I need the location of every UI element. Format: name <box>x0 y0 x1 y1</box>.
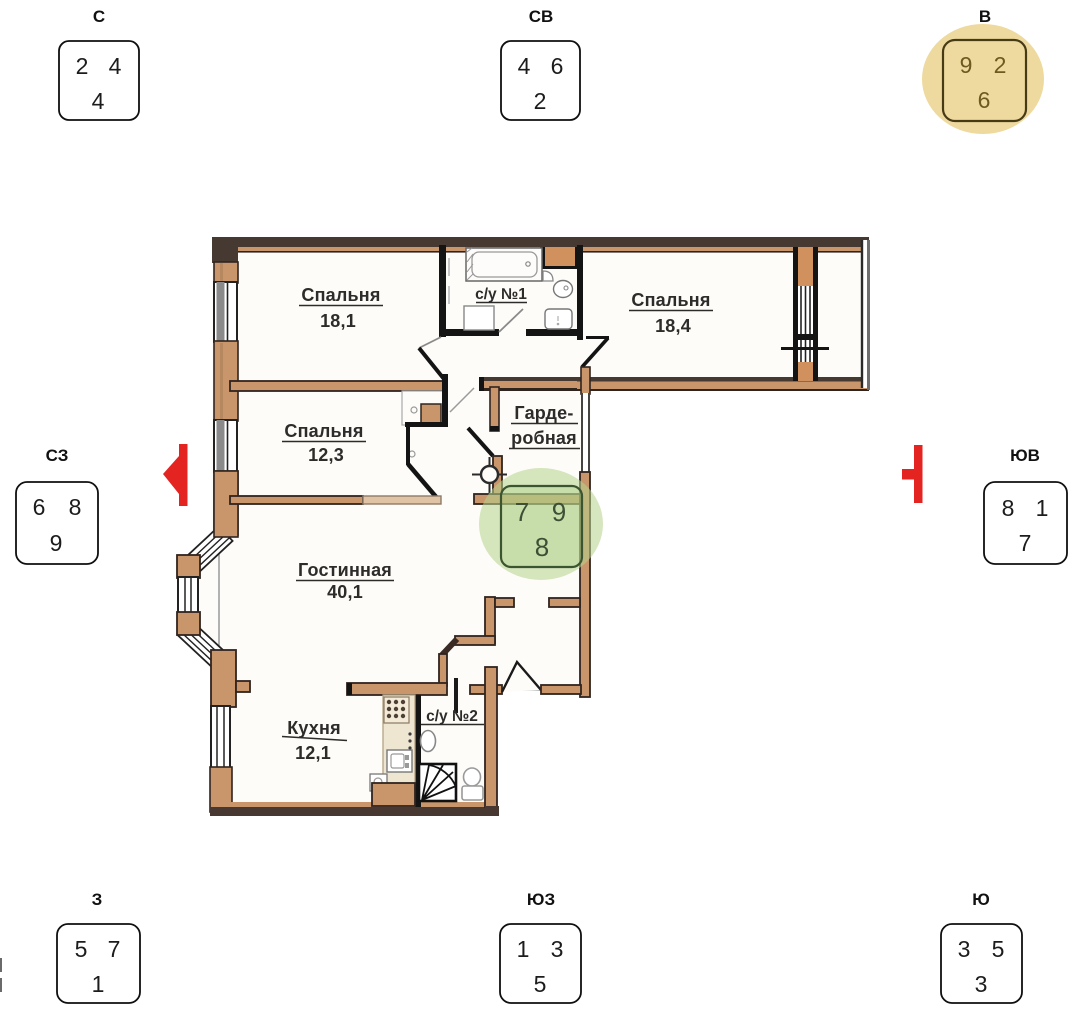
svg-text:СЗ: СЗ <box>46 446 69 465</box>
svg-text:робная: робная <box>511 428 577 448</box>
svg-text:З: З <box>92 890 103 909</box>
svg-text:4: 4 <box>109 53 122 79</box>
svg-text:1: 1 <box>92 971 105 997</box>
svg-text:7: 7 <box>108 936 121 962</box>
svg-text:8: 8 <box>1002 495 1015 521</box>
svg-text:2: 2 <box>76 53 89 79</box>
svg-text:7: 7 <box>1019 530 1032 556</box>
svg-text:3: 3 <box>958 936 971 962</box>
svg-text:1: 1 <box>517 936 530 962</box>
svg-text:7: 7 <box>515 497 529 527</box>
svg-text:Спальня: Спальня <box>301 285 380 305</box>
svg-text:ЮВ: ЮВ <box>1010 446 1040 465</box>
svg-text:2: 2 <box>534 88 547 114</box>
svg-text:9: 9 <box>50 530 63 556</box>
svg-text:с/у №2: с/у №2 <box>426 708 478 725</box>
svg-text:В: В <box>979 7 991 26</box>
svg-text:8: 8 <box>69 494 82 520</box>
svg-text:5: 5 <box>534 971 547 997</box>
svg-text:ЮЗ: ЮЗ <box>527 890 555 909</box>
svg-text:СВ: СВ <box>529 7 554 26</box>
svg-text:40,1: 40,1 <box>327 582 363 602</box>
svg-text:Гарде-: Гарде- <box>514 403 573 423</box>
svg-text:8: 8 <box>535 532 549 562</box>
svg-text:12,1: 12,1 <box>295 743 331 763</box>
svg-text:6: 6 <box>551 53 564 79</box>
svg-text:18,1: 18,1 <box>320 311 356 331</box>
svg-text:6: 6 <box>33 494 46 520</box>
svg-text:12,3: 12,3 <box>308 445 344 465</box>
svg-text:9: 9 <box>960 52 973 78</box>
svg-text:5: 5 <box>75 936 88 962</box>
svg-text:С: С <box>93 7 105 26</box>
svg-text:4: 4 <box>518 53 531 79</box>
svg-text:9: 9 <box>552 497 566 527</box>
svg-text:1: 1 <box>1036 495 1049 521</box>
svg-text:3: 3 <box>975 971 988 997</box>
svg-text:Ю: Ю <box>972 890 990 909</box>
svg-text:Гостинная: Гостинная <box>298 560 392 580</box>
svg-text:6: 6 <box>978 87 991 113</box>
svg-text:Кухня: Кухня <box>287 718 341 738</box>
svg-text:18,4: 18,4 <box>655 316 691 336</box>
svg-text:4: 4 <box>92 88 105 114</box>
svg-text:с/у №1: с/у №1 <box>475 286 527 303</box>
svg-text:2: 2 <box>994 52 1007 78</box>
svg-text:Спальня: Спальня <box>284 421 363 441</box>
svg-text:Спальня: Спальня <box>631 290 710 310</box>
svg-text:5: 5 <box>992 936 1005 962</box>
svg-text:3: 3 <box>551 936 564 962</box>
